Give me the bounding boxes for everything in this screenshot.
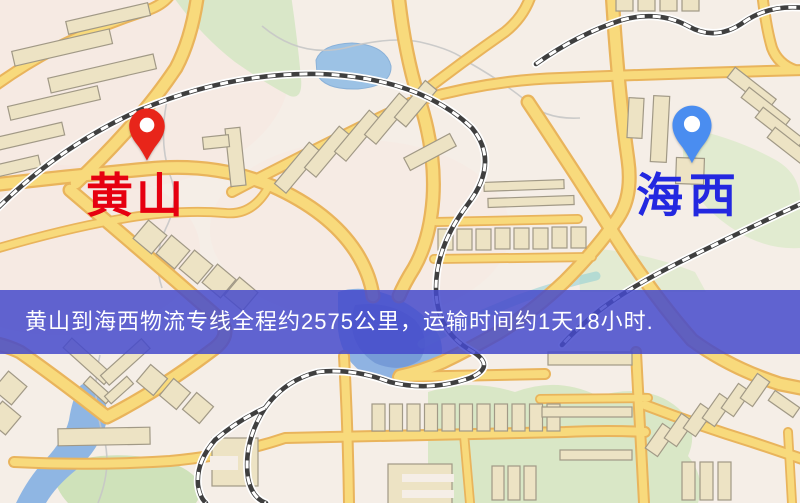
route-info-banner: 黄山到海西物流专线全程约2575公里，运输时间约1天18小时. [0, 290, 800, 354]
map-canvas[interactable] [0, 0, 800, 503]
route-info-text: 黄山到海西物流专线全程约2575公里，运输时间约1天18小时. [25, 309, 654, 334]
destination-city-label: 海西 [636, 174, 742, 221]
blue-map-pin-icon[interactable] [670, 104, 714, 166]
map-screenshot: 黄山 海西 黄山到海西物流专线全程约2575公里，运输时间约1天18小时. [0, 0, 800, 503]
origin-city-label: 黄山 [86, 174, 186, 221]
red-map-pin-icon[interactable] [127, 104, 167, 166]
